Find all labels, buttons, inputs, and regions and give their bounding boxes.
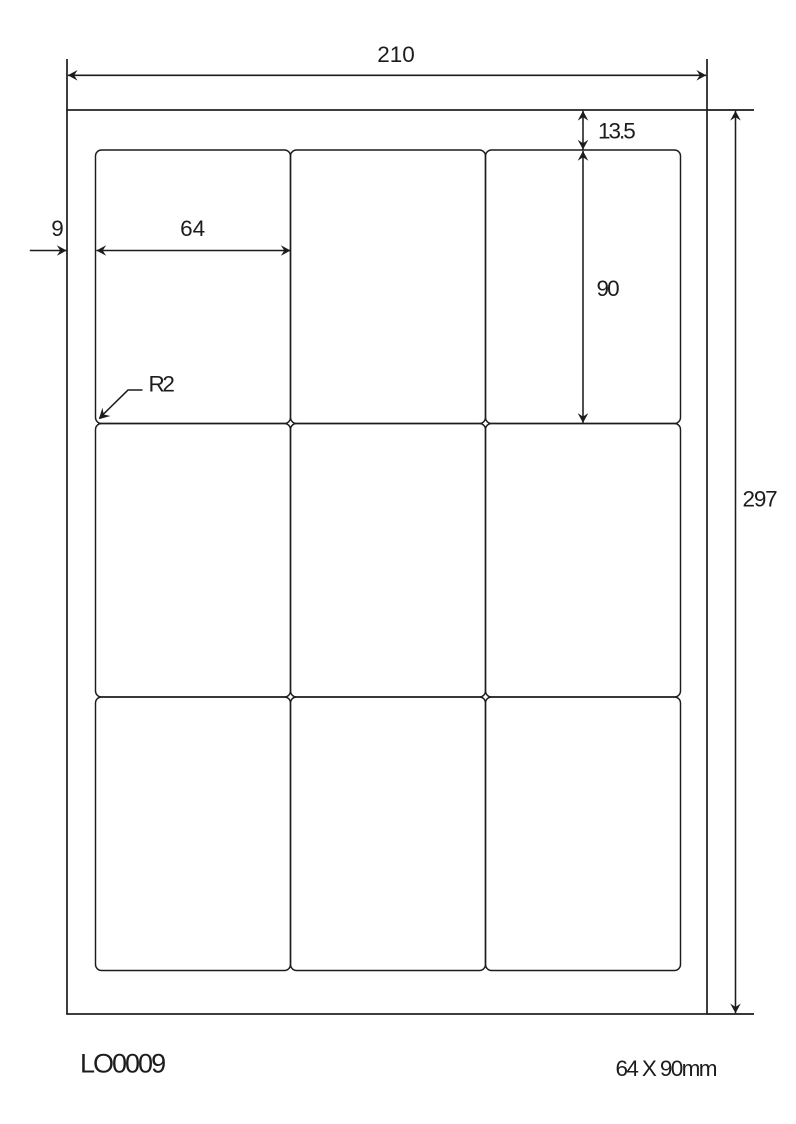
svg-text:297: 297 [743,487,778,512]
svg-text:R2: R2 [149,372,175,397]
svg-text:LO0009: LO0009 [80,1049,165,1079]
svg-text:90: 90 [597,276,620,301]
svg-text:210: 210 [377,42,415,67]
svg-text:64: 64 [180,216,205,241]
svg-text:64 X 90mm: 64 X 90mm [616,1056,717,1081]
svg-text:9: 9 [51,216,64,241]
svg-text:13.5: 13.5 [598,119,635,144]
